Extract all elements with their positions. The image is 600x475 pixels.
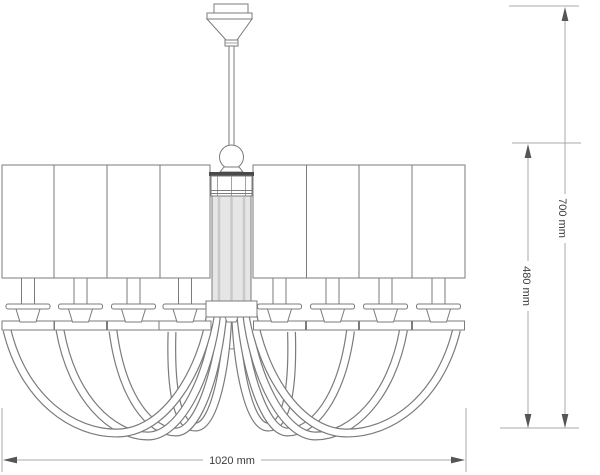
candle-tube xyxy=(179,278,192,305)
dimension-body-height: 480 mm xyxy=(520,144,532,428)
candle-cup xyxy=(374,309,398,322)
candle-tube xyxy=(127,278,140,305)
right-shades xyxy=(253,165,465,278)
chandelier-drawing: 700 mm 480 mm 1020 mm xyxy=(0,0,600,475)
dimension-body-height-label: 480 mm xyxy=(520,266,532,306)
candle-tube xyxy=(22,278,35,305)
candle-cup xyxy=(122,309,146,322)
candle-tube xyxy=(74,278,87,305)
top-sphere xyxy=(220,145,244,172)
candle-holder xyxy=(55,278,107,330)
bobeche-disc xyxy=(364,304,408,309)
center-column xyxy=(206,172,257,322)
suspension-rod xyxy=(229,46,234,146)
left-shades xyxy=(2,165,210,278)
candle-cup xyxy=(173,309,197,322)
candle-cup xyxy=(268,309,292,322)
column-collar xyxy=(206,301,257,317)
bobeche-disc xyxy=(311,304,355,309)
candle-holder xyxy=(254,278,306,330)
bobeche-disc xyxy=(112,304,156,309)
bobeche-disc xyxy=(163,304,207,309)
candle-cup xyxy=(16,309,40,322)
bobeche-disc xyxy=(6,304,50,309)
dimension-overall-height: 700 mm xyxy=(556,7,568,428)
candle-holder xyxy=(307,278,359,330)
candle-tube xyxy=(432,278,445,305)
bobeche-disc xyxy=(417,304,461,309)
bobeche-disc xyxy=(59,304,103,309)
candle-holder xyxy=(413,278,465,330)
candle-holder xyxy=(360,278,412,330)
candle-holder xyxy=(159,278,211,330)
candle-cup xyxy=(427,309,451,322)
candle-holder xyxy=(108,278,160,330)
dimension-overall-height-label: 700 mm xyxy=(556,198,568,238)
candle-cup xyxy=(69,309,93,322)
bobeche-disc xyxy=(258,304,302,309)
technical-drawing-canvas: 700 mm 480 mm 1020 mm xyxy=(0,0,600,475)
candle-tube xyxy=(326,278,339,305)
column-neck xyxy=(225,317,238,322)
candle-tube xyxy=(273,278,286,305)
dimension-width-label: 1020 mm xyxy=(209,455,255,467)
dimension-width: 1020 mm xyxy=(3,455,465,467)
candle-cup xyxy=(321,309,345,322)
ceiling-canopy xyxy=(207,4,252,46)
candle-holder xyxy=(2,278,54,330)
candle-tube xyxy=(379,278,392,305)
